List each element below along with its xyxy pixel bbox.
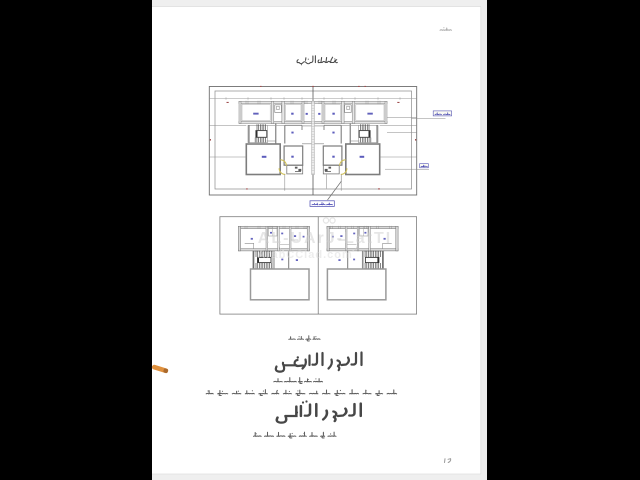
svg-text:AL-UArJ-LatTI: AL-UArJ-LatTI (258, 230, 392, 247)
svg-text:ArabCClad.com: ArabCClad.com (257, 249, 353, 261)
